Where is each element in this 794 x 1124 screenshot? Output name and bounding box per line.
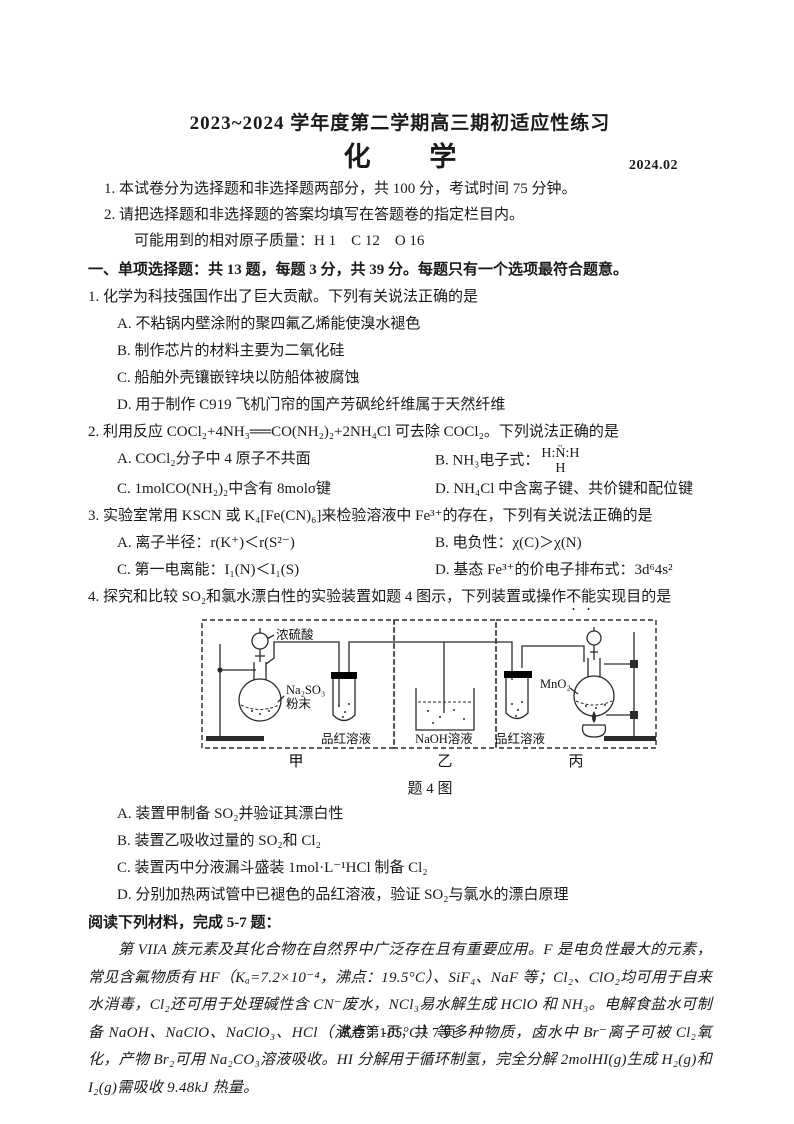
question-3-option-c: C. 第一电离能：I₁(N)＜I₁(S)	[88, 557, 406, 584]
label-mno2: MnO₂	[540, 677, 571, 691]
question-2-option-c: C. 1molCO(NH₂)₂中含有 8molσ键	[88, 476, 406, 503]
dot	[432, 722, 434, 724]
alcohol-lamp	[582, 725, 605, 737]
figure-caption: 题 4 图	[200, 777, 660, 801]
dropping-funnel-bing	[587, 631, 601, 645]
question-1-option-c: C. 船舶外壳镶嵌锌块以防船体被腐蚀	[88, 365, 712, 392]
label-fuchsin-right: 品红溶液	[495, 731, 546, 746]
page-title: 2023~2024 学年度第二学期高三期初适应性练习	[88, 112, 712, 136]
flask-bing-liquid	[576, 701, 612, 705]
dot	[515, 715, 517, 717]
question-1-stem: 1. 化学为科技强国作出了巨大贡献。下列有关说法正确的是	[88, 284, 712, 311]
question-4-figure: 浓硫酸 Na₂SO₃ 粉末 品红溶液 NaOH溶液	[200, 618, 660, 801]
question-1-option-b: B. 制作芯片的材料主要为二氧化硅	[88, 338, 712, 365]
label-naoh: NaOH溶液	[415, 731, 473, 746]
label-setup-yi: 乙	[437, 754, 452, 770]
question-2-options-row1: A. COCl₂分子中 4 原子不共面 B. NH₃电子式：H:N̈:HH	[88, 446, 712, 476]
test-tube-jia	[333, 679, 355, 721]
question-4-stem-suffix: 实现目的是	[596, 589, 671, 605]
label-setup-bing: 丙	[568, 754, 583, 770]
atomic-mass-note: 可能用到的相对原子质量：H 1 C 12 O 16	[134, 228, 712, 254]
question-3-options-row2: C. 第一电离能：I₁(N)＜I₁(S) D. 基态 Fe³⁺的价电子排布式：3…	[88, 557, 712, 584]
page-footer: 试卷第1页，共 7 页	[0, 1022, 794, 1042]
subject-row: 化 学 2024.02	[88, 138, 712, 176]
dot	[595, 707, 597, 709]
question-4-option-a: A. 装置甲制备 SO₂并验证其漂白性	[88, 801, 712, 828]
exam-page: 2023~2024 学年度第二学期高三期初适应性练习 化 学 2024.02 1…	[0, 0, 794, 1124]
question-2-option-a: A. COCl₂分子中 4 原子不共面	[88, 446, 406, 476]
dot	[517, 709, 519, 711]
question-2-stem: 2. 利用反应 COCl₂+4NH₃══CO(NH₂)₂+2NH₄Cl 可去除 …	[88, 419, 712, 446]
lewis-bottom-row: H	[555, 461, 565, 476]
dot	[348, 703, 350, 705]
dot	[585, 705, 587, 707]
question-4-option-b: B. 装置乙吸收过量的 SO₂和 Cl₂	[88, 828, 712, 855]
main-tube-run	[349, 642, 512, 680]
question-2-options-row2: C. 1molCO(NH₂)₂中含有 8molσ键 D. NH₄Cl 中含离子键…	[88, 476, 712, 503]
question-1-option-a: A. 不粘锅内壁涂附的聚四氟乙烯能使溴水褪色	[88, 311, 712, 338]
question-4-stem-prefix: 4. 探究和比较 SO₂和氯水漂白性的实验装置如题 4 图示，下列装置或操作	[88, 589, 566, 605]
label-na2so3: Na₂SO₃	[286, 683, 325, 697]
stopper-jia	[331, 672, 357, 679]
apparatus-diagram: 浓硫酸 Na₂SO₃ 粉末 品红溶液 NaOH溶液	[200, 618, 660, 770]
dot	[521, 701, 523, 703]
question-2-option-d: D. NH₄Cl 中含离子键、共价键和配位键	[406, 476, 712, 503]
clamp-knob-right-bottom	[630, 711, 638, 719]
clamp-knob-right-top	[630, 660, 638, 668]
dot	[342, 716, 344, 718]
exam-date: 2024.02	[629, 158, 678, 174]
box-bing	[496, 620, 656, 748]
flask-bing	[574, 676, 614, 716]
dot	[439, 716, 441, 718]
dot	[427, 710, 429, 712]
reading-material-paragraph: 第 VIIA 族元素及其化合物在自然界中广泛存在且有重要应用。F 是电负性最大的…	[88, 937, 712, 1102]
dot	[604, 704, 606, 706]
section-heading: 一、单项选择题：共 13 题，每题 3 分，共 39 分。每题只有一个选项最符合…	[88, 257, 712, 284]
label-powder: 粉末	[286, 696, 312, 711]
subject-title: 化 学	[344, 142, 483, 172]
clamp-knob-left	[217, 667, 222, 672]
stand-base-left	[206, 736, 264, 741]
nh3-lewis-structure: H:N̈:HH	[541, 446, 579, 476]
label-setup-jia: 甲	[288, 754, 303, 770]
dot	[251, 710, 253, 712]
dot	[453, 709, 455, 711]
instruction-1: 1. 本试卷分为选择题和非选择题两部分，共 100 分，考试时间 75 分钟。	[104, 176, 712, 202]
question-3-stem: 3. 实验室常用 KSCN 或 K₄[Fe(CN)₆]来检验溶液中 Fe³⁺的存…	[88, 503, 712, 530]
question-3-option-b: B. 电负性：χ(C)＞χ(N)	[406, 530, 712, 557]
label-concentrated-acid: 浓硫酸	[276, 627, 314, 642]
test-tube-bing	[506, 678, 528, 719]
question-1-option-d: D. 用于制作 C919 飞机门帘的国产芳砜纶纤维属于天然纤维	[88, 392, 712, 419]
reading-material-heading: 阅读下列材料，完成 5-7 题：	[88, 909, 712, 937]
dropping-funnel-jia	[252, 633, 268, 649]
question-3-option-d: D. 基态 Fe³⁺的价电子排布式：3d⁶4s²	[406, 557, 712, 584]
box-yi	[394, 620, 496, 748]
question-3-option-a: A. 离子半径：r(K⁺)＜r(S²⁻)	[88, 530, 406, 557]
lewis-top-row: H:N̈:H	[541, 446, 579, 461]
question-2-option-b-label: B. NH₃电子式：	[435, 452, 539, 468]
question-4-option-c: C. 装置丙中分液漏斗盛装 1mol·L⁻¹HCl 制备 Cl₂	[88, 855, 712, 882]
tube-bing-to-flask	[522, 646, 584, 668]
instruction-2: 2. 请把选择题和非选择题的答案均填写在答题卷的指定栏目内。	[104, 202, 712, 228]
dot	[463, 718, 465, 720]
dot	[344, 711, 346, 713]
question-4-stem: 4. 探究和比较 SO₂和氯水漂白性的实验装置如题 4 图示，下列装置或操作不能…	[88, 584, 712, 614]
question-4-option-d: D. 分别加热两试管中已褪色的品红溶液，验证 SO₂与氯水的漂白原理	[88, 882, 712, 909]
pointer-acid	[267, 635, 274, 639]
question-2-option-b: B. NH₃电子式：H:N̈:HH	[406, 446, 712, 476]
question-3-options-row1: A. 离子半径：r(K⁺)＜r(S²⁻) B. 电负性：χ(C)＞χ(N)	[88, 530, 712, 557]
question-4-stem-emphasis: 不能	[566, 589, 596, 605]
stopper-bing	[504, 671, 532, 678]
flask-jia-liquid	[241, 705, 279, 710]
stand-base-right	[604, 736, 656, 741]
dot	[338, 705, 340, 707]
lamp-flame	[592, 711, 596, 723]
beaker-yi	[416, 688, 474, 730]
label-fuchsin-left: 品红溶液	[321, 731, 372, 746]
dot	[511, 703, 513, 705]
dot	[259, 713, 261, 715]
dot	[268, 710, 270, 712]
